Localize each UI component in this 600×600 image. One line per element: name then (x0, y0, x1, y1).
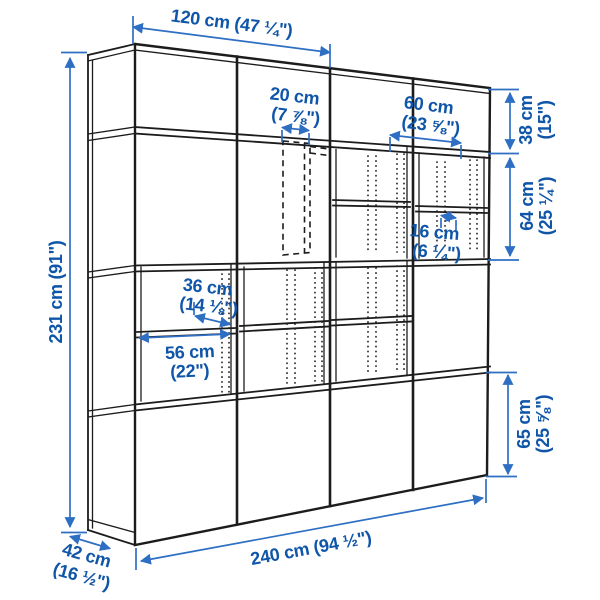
dim-h38-label-1: 38 cm (516, 95, 536, 145)
dim-inner-56-label-2: (22") (170, 360, 210, 382)
dim-total-width: 240 cm (94 ½") (136, 479, 486, 570)
dimension-diagram-svg: 231 cm (91") 120 cm (47 ¼") 240 cm (94 ½… (0, 0, 600, 600)
dim-h64-label-2: (25 ¼") (536, 176, 556, 235)
dim-niche-20: 20 cm (7 ⅞") (269, 83, 321, 145)
dim-h65: 65 cm (25 ⅝") (486, 373, 553, 477)
dim-upper-width-label: 120 cm (47 ¼") (170, 5, 294, 40)
dim-h38-label-2: (15") (535, 100, 555, 139)
dim-total-height: 231 cm (91") (46, 53, 87, 533)
dimension-annotations: 231 cm (91") 120 cm (47 ¼") 240 cm (94 ½… (46, 5, 556, 593)
dim-gap-16: 16 cm (6 ¼") (409, 216, 462, 264)
dim-h64-label-1: 64 cm (517, 181, 537, 231)
dim-total-height-label: 231 cm (91") (46, 240, 66, 343)
dim-h38: 38 cm (15") (488, 90, 555, 154)
dim-shelf-36: 36 cm (14 ⅛") (179, 274, 240, 324)
dim-h64: 64 cm (25 ¼") (488, 158, 556, 260)
dim-upper-width: 120 cm (47 ¼") (133, 5, 330, 68)
phantom-section-outline (283, 141, 329, 255)
side-panel (88, 44, 135, 545)
shelf-pin-holes (222, 154, 477, 392)
dim-h65-label-1: 65 cm (514, 399, 534, 449)
dim-h65-label-2: (25 ⅝") (533, 394, 553, 453)
dim-total-width-label: 240 cm (94 ½") (249, 527, 373, 569)
dim-inner-56: 56 cm (22") (139, 334, 230, 382)
dim-depth: 42 cm (16 ½") (51, 537, 113, 594)
dim-niche-20-label-2: (7 ⅞") (270, 103, 321, 128)
diagram-canvas: 231 cm (91") 120 cm (47 ¼") 240 cm (94 ½… (0, 0, 600, 600)
dim-gap-16-label-2: (6 ¼") (411, 240, 461, 264)
